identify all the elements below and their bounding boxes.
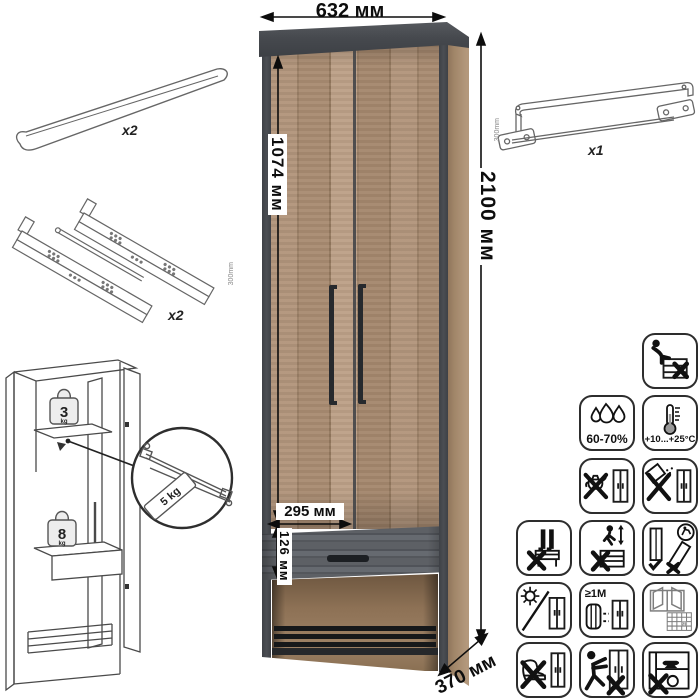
- drawer-height-dimension-label: 126 мм: [277, 528, 292, 585]
- door-width-dimension-label: 295 мм: [276, 503, 344, 520]
- handle-quantity: x2: [122, 122, 138, 138]
- rail-length-tag: 300mm: [494, 118, 501, 141]
- rail-quantity: x1: [588, 142, 604, 158]
- height-dimension-label: 2100 мм: [476, 168, 499, 265]
- slides-length-tag: 300mm: [228, 262, 235, 285]
- dimension-arrows-overlay: [0, 0, 700, 700]
- wardrobe-assembly-diagram: 632 мм 1074 мм 2100 мм 295 мм 126 мм 370…: [0, 0, 700, 700]
- width-dimension-label: 632 мм: [298, 0, 402, 23]
- door-height-dimension-label: 1074 мм: [268, 134, 287, 215]
- slides-quantity: x2: [168, 307, 184, 323]
